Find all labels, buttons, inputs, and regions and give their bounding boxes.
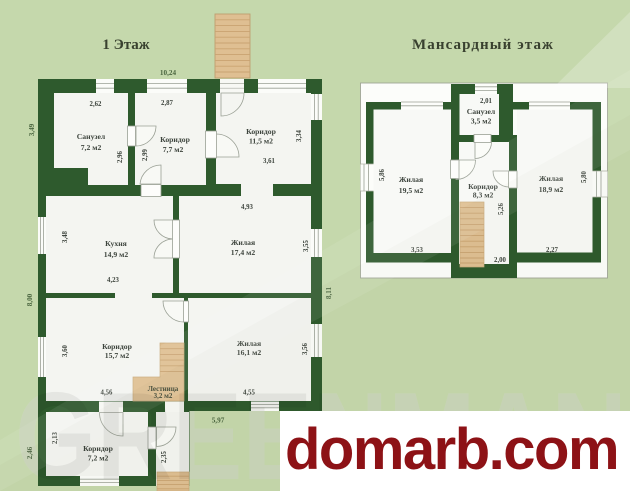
svg-text:Жилая: Жилая (399, 175, 423, 184)
svg-text:3,34: 3,34 (296, 129, 303, 141)
svg-text:17,4 м2: 17,4 м2 (231, 248, 256, 257)
svg-text:Санузел: Санузел (467, 107, 496, 116)
svg-text:Жилая: Жилая (231, 238, 255, 247)
svg-text:2,62: 2,62 (90, 101, 102, 108)
svg-text:domarb.com: domarb.com (285, 417, 618, 482)
svg-text:Кухня: Кухня (105, 239, 127, 248)
svg-text:3,49: 3,49 (28, 123, 36, 136)
svg-text:10,24: 10,24 (160, 69, 177, 77)
svg-text:3,48: 3,48 (62, 230, 69, 242)
svg-text:8,00: 8,00 (26, 293, 34, 306)
svg-text:3,5 м2: 3,5 м2 (471, 117, 492, 126)
svg-text:Мансардный этаж: Мансардный этаж (412, 37, 554, 53)
svg-text:Коридор: Коридор (246, 127, 276, 136)
svg-text:11,5 м2: 11,5 м2 (249, 137, 273, 146)
svg-text:7,2 м2: 7,2 м2 (81, 143, 102, 152)
svg-text:15,7 м2: 15,7 м2 (105, 351, 130, 360)
svg-text:Коридор: Коридор (160, 135, 190, 144)
svg-text:3,55: 3,55 (303, 239, 310, 251)
svg-text:1 Этаж: 1 Этаж (102, 37, 149, 53)
svg-text:Коридор: Коридор (102, 342, 132, 351)
svg-text:5,86: 5,86 (379, 168, 386, 180)
svg-text:7,7 м2: 7,7 м2 (163, 145, 184, 154)
svg-text:3,60: 3,60 (62, 344, 69, 356)
svg-text:4,93: 4,93 (241, 204, 253, 211)
svg-text:14,9 м2: 14,9 м2 (104, 250, 129, 259)
svg-text:2,87: 2,87 (161, 100, 173, 107)
svg-text:Санузел: Санузел (77, 132, 106, 141)
svg-text:4,23: 4,23 (107, 277, 119, 284)
svg-text:2,96: 2,96 (117, 150, 124, 162)
svg-text:2,99: 2,99 (142, 148, 149, 160)
svg-text:3,61: 3,61 (263, 158, 275, 165)
svg-text:2,01: 2,01 (480, 98, 492, 105)
